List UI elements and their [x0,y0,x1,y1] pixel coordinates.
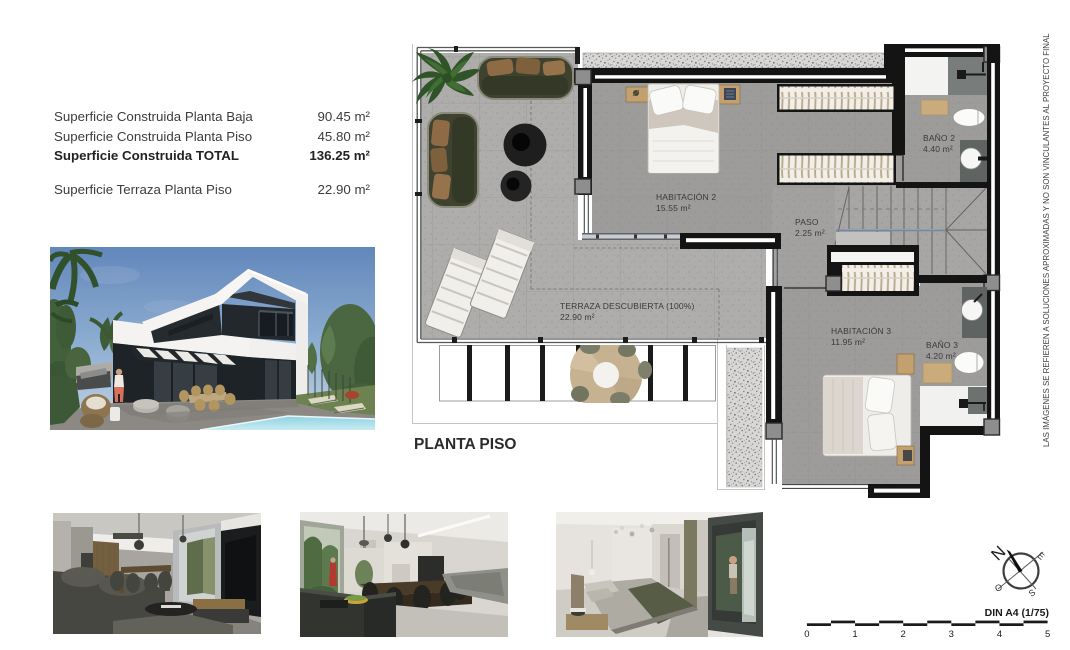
svg-text:1: 1 [852,629,857,640]
svg-text:4: 4 [997,629,1002,640]
svg-text:E: E [1036,550,1047,562]
svg-text:0: 0 [804,629,809,640]
svg-text:3: 3 [949,629,954,640]
svg-text:5: 5 [1045,629,1050,640]
svg-text:O: O [994,582,1003,593]
svg-text:2: 2 [901,629,906,640]
svg-text:DIN A4 (1/75): DIN A4 (1/75) [985,607,1049,619]
